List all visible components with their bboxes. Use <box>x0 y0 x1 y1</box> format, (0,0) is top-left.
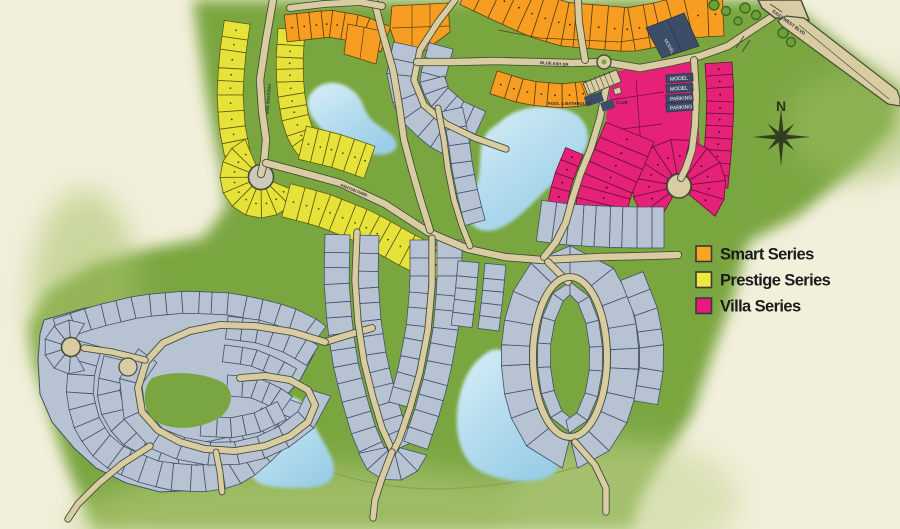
svg-text:MODEL: MODEL <box>670 75 688 82</box>
svg-text:Smart Series: Smart Series <box>720 246 814 264</box>
svg-text:N: N <box>776 98 786 114</box>
svg-text:MODEL: MODEL <box>670 85 688 92</box>
svg-text:POOL & BATHHOUSE: POOL & BATHHOUSE <box>548 101 592 106</box>
svg-text:Villa Series: Villa Series <box>720 298 801 316</box>
svg-text:Prestige Series: Prestige Series <box>720 272 831 290</box>
svg-text:CLUB: CLUB <box>616 100 628 105</box>
